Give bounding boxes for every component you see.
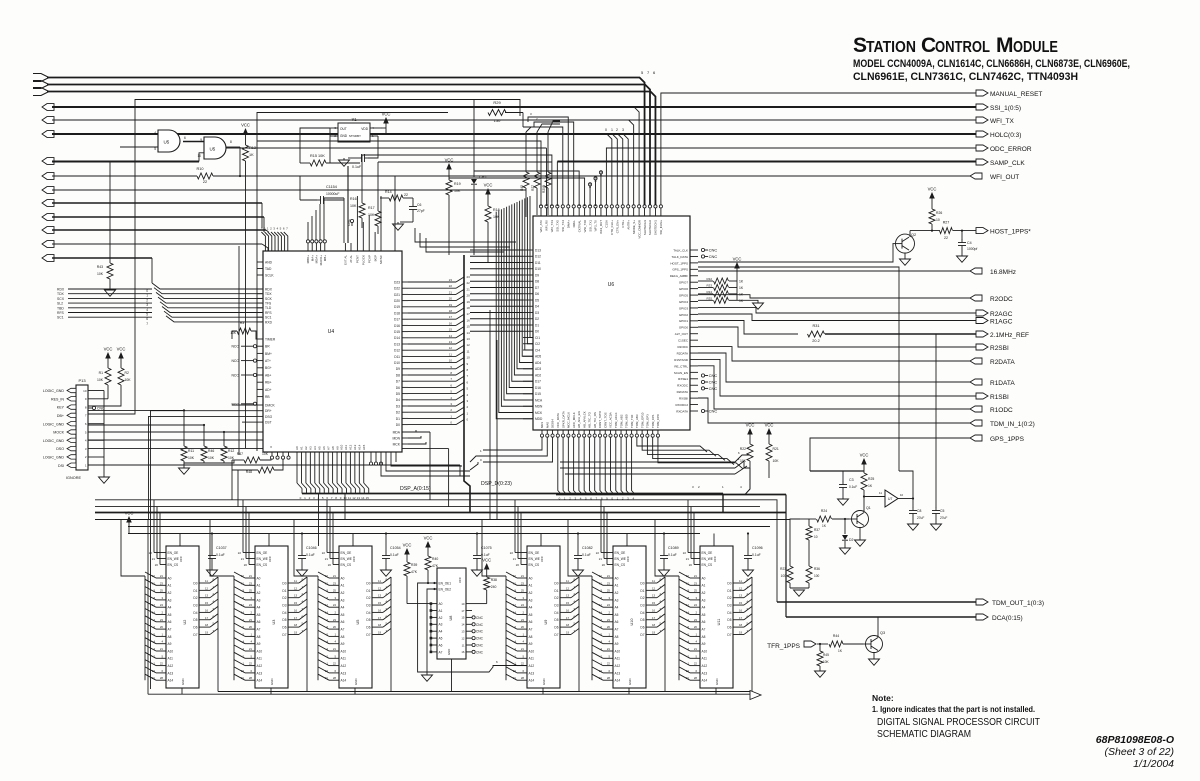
svg-text:EN_OE: EN_OE: [168, 551, 179, 555]
svg-text:26: 26: [521, 625, 525, 629]
svg-text:A9: A9: [335, 446, 339, 450]
svg-text:D4: D4: [554, 611, 558, 615]
svg-text:U8: U8: [449, 616, 453, 621]
svg-text:1. Ignore indicates that t: 1. Ignore indicates that the part is not…: [872, 705, 1035, 714]
svg-text:28: 28: [607, 676, 611, 680]
svg-text:S: S: [853, 34, 867, 57]
svg-text:26: 26: [333, 625, 337, 629]
svg-text:OUT: OUT: [340, 127, 347, 131]
svg-text:0.1uF: 0.1uF: [849, 485, 857, 489]
svg-text:D0: D0: [727, 581, 731, 585]
svg-text:RXDATA: RXDATA: [676, 409, 688, 413]
svg-text:EN_WE: EN_WE: [529, 557, 540, 561]
svg-text:A0: A0: [257, 576, 261, 580]
svg-text:R1: R1: [99, 371, 103, 375]
svg-text:14: 14: [599, 611, 603, 615]
svg-text:IGNORE: IGNORE: [66, 476, 81, 480]
svg-text:A0: A0: [439, 602, 443, 606]
svg-text:LOGIC_GND: LOGIC_GND: [43, 389, 65, 393]
svg-text:19: 19: [378, 630, 382, 634]
svg-text:C8: C8: [917, 509, 921, 513]
svg-text:A3: A3: [341, 598, 345, 602]
svg-text:TFR_1PPS: TFR_1PPS: [767, 643, 801, 650]
svg-text:GPIO6: GPIO6: [679, 287, 689, 291]
svg-text:SSI_TX5: SSI_TX5: [556, 220, 560, 232]
svg-text:SSI_TX1: SSI_TX1: [588, 220, 592, 232]
svg-text:SCHEMATIC DIAGRAM: SCHEMATIC DIAGRAM: [877, 729, 971, 740]
svg-text:VCC: VCC: [382, 112, 391, 117]
svg-text:12: 12: [205, 586, 209, 590]
svg-text:10K: 10K: [125, 378, 132, 382]
svg-text:TDX: TDX: [57, 292, 65, 296]
svg-text:X: X: [270, 445, 272, 449]
svg-text:A3: A3: [702, 598, 706, 602]
svg-text:CNC: CNC: [476, 644, 484, 648]
svg-text:12: 12: [241, 603, 245, 607]
svg-text:SSI_IN.IN+: SSI_IN.IN+: [659, 220, 663, 235]
svg-text:R24: R24: [821, 509, 827, 513]
svg-text:VCC: VCC: [746, 423, 755, 428]
svg-text:A0: A0: [529, 576, 533, 580]
svg-text:D7: D7: [282, 633, 286, 637]
svg-text:RXSE1: RXSE1: [678, 377, 688, 381]
svg-text:HOLC(0:3): HOLC(0:3): [990, 132, 1021, 139]
svg-text:CNC: CNC: [709, 248, 718, 253]
svg-text:D2: D2: [849, 538, 853, 542]
svg-text:D2: D2: [193, 596, 197, 600]
svg-text:13: 13: [294, 594, 298, 598]
svg-text:0.1uF: 0.1uF: [668, 553, 677, 557]
svg-text:HB_AFA_EN: HB_AFA_EN: [577, 411, 581, 428]
svg-text:D7: D7: [535, 286, 539, 290]
svg-text:28: 28: [694, 676, 698, 680]
svg-text:RES_IN: RES_IN: [51, 397, 64, 401]
svg-text:C1SA: C1SA: [605, 220, 609, 228]
svg-text:DST: DST: [265, 421, 272, 425]
svg-text:U5: U5: [356, 620, 360, 625]
svg-text:ANTR+: ANTR+: [626, 220, 630, 230]
svg-text:GPIO3: GPIO3: [679, 306, 689, 310]
svg-text:10: 10: [900, 493, 904, 497]
svg-text:14: 14: [461, 623, 465, 627]
svg-text:11: 11: [879, 491, 882, 495]
svg-text:20: 20: [244, 563, 248, 567]
svg-text:R16: R16: [350, 197, 357, 201]
svg-text:100: 100: [814, 574, 820, 578]
svg-text:17: 17: [739, 616, 743, 620]
svg-text:A11: A11: [168, 657, 174, 661]
svg-text:23: 23: [249, 618, 253, 622]
svg-text:10: 10: [467, 356, 471, 360]
svg-text:RFS: RFS: [57, 311, 65, 315]
svg-text:20: 20: [328, 563, 332, 567]
svg-text:D11: D11: [535, 261, 541, 265]
svg-text:A6: A6: [615, 620, 619, 624]
svg-text:GPIO0: GPIO0: [679, 326, 689, 330]
svg-text:21: 21: [607, 647, 611, 651]
svg-text:11: 11: [566, 579, 569, 583]
svg-text:10K: 10K: [97, 272, 104, 276]
svg-text:CLN6961E, CLN7361C, CLN7462C,: CLN6961E, CLN7361C, CLN7462C, TTN4093H: [853, 71, 1078, 83]
svg-text:VCC: VCC: [179, 556, 183, 562]
svg-text:10K: 10K: [350, 204, 357, 208]
svg-text:TDX: TDX: [265, 292, 272, 296]
svg-text:1K: 1K: [739, 299, 744, 303]
svg-text:VCC: VCC: [268, 556, 272, 562]
svg-text:SCK: SCK: [265, 297, 273, 301]
svg-text:10K: 10K: [188, 456, 195, 460]
svg-text:A5: A5: [702, 613, 706, 617]
svg-text:17: 17: [294, 616, 298, 620]
svg-text:A6: A6: [702, 620, 706, 624]
svg-text:D4: D4: [282, 611, 286, 615]
svg-text:CTR_CLK+: CTR_CLK+: [610, 220, 614, 235]
svg-text:R27: R27: [531, 185, 535, 191]
svg-text:25: 25: [694, 589, 698, 593]
svg-text:11: 11: [325, 581, 328, 585]
svg-text:D6: D6: [727, 626, 731, 630]
svg-text:10K: 10K: [773, 459, 780, 463]
svg-text:A3: A3: [257, 598, 261, 602]
svg-text:24: 24: [694, 603, 698, 607]
svg-text:23: 23: [249, 581, 253, 585]
svg-text:A11: A11: [341, 657, 347, 661]
svg-text:19: 19: [449, 303, 453, 307]
svg-text:A15: A15: [362, 444, 366, 450]
svg-text:PLOCK: PLOCK: [362, 255, 366, 265]
svg-text:22: 22: [404, 193, 408, 197]
svg-text:WSI_TX0: WSI_TX0: [583, 220, 587, 233]
svg-text:13: 13: [566, 594, 570, 598]
svg-text:13: 13: [449, 340, 453, 344]
svg-text:A6: A6: [257, 620, 261, 624]
svg-text:12: 12: [152, 603, 156, 607]
svg-text:R2ODC: R2ODC: [990, 296, 1013, 303]
svg-text:D3: D3: [554, 603, 558, 607]
svg-text:23: 23: [521, 581, 525, 585]
svg-text:R2: R2: [125, 371, 129, 375]
svg-text:D10: D10: [535, 267, 541, 271]
svg-text:11: 11: [294, 579, 297, 583]
svg-text:NCO: NCO: [231, 359, 239, 363]
svg-text:A13: A13: [341, 671, 347, 675]
svg-text:D6: D6: [640, 626, 644, 630]
svg-text:VCC: VCC: [352, 556, 356, 562]
svg-text:1K: 1K: [249, 153, 254, 157]
svg-text:1K: 1K: [739, 280, 744, 284]
svg-text:TOM_ACLK: TOM_ACLK: [614, 412, 618, 428]
svg-text:12: 12: [294, 586, 298, 590]
svg-text:A4: A4: [257, 606, 261, 610]
svg-text:22: 22: [521, 662, 525, 666]
svg-text:U7: U7: [888, 497, 892, 501]
svg-text:DMA+: DMA+: [566, 220, 570, 228]
svg-text:18: 18: [205, 623, 209, 627]
svg-text:MDA: MDA: [393, 430, 401, 434]
svg-text:C4: C4: [967, 241, 972, 245]
svg-text:TOM_AB3: TOM_AB3: [635, 414, 639, 428]
svg-text:D6: D6: [366, 626, 370, 630]
svg-text:10: 10: [936, 218, 940, 222]
svg-text:17: 17: [461, 609, 465, 613]
svg-text:R25: R25: [868, 477, 874, 481]
svg-text:GND: GND: [715, 679, 719, 685]
svg-text:21: 21: [152, 676, 156, 680]
svg-text:D7: D7: [554, 633, 558, 637]
svg-text:D4: D4: [727, 611, 731, 615]
svg-text:RXODC: RXODC: [677, 384, 689, 388]
svg-text:TOM_CP1: TOM_CP1: [651, 414, 655, 428]
svg-text:15: 15: [378, 601, 382, 605]
svg-text:16: 16: [461, 650, 465, 654]
svg-text:A9: A9: [615, 642, 619, 646]
svg-text:D2: D2: [366, 596, 370, 600]
svg-text:22: 22: [449, 284, 453, 288]
svg-text:D2: D2: [396, 411, 400, 415]
svg-text:BGP: BGP: [373, 255, 377, 261]
svg-text:23: 23: [467, 275, 471, 279]
svg-text:D3: D3: [396, 404, 400, 408]
svg-text:22: 22: [683, 551, 687, 555]
svg-text:R43: R43: [97, 265, 103, 269]
svg-text:25: 25: [521, 589, 525, 593]
svg-text:24: 24: [241, 669, 245, 673]
svg-text:R29B: R29B: [542, 185, 546, 193]
svg-text:RB+: RB+: [265, 381, 272, 385]
svg-text:A8: A8: [341, 635, 345, 639]
svg-text:D15: D15: [535, 392, 541, 396]
svg-text:CRNT_TOS: CRNT_TOS: [603, 412, 607, 428]
svg-text:EN_WE: EN_WE: [341, 557, 352, 561]
svg-text:CTR_EN+: CTR_EN+: [616, 220, 620, 234]
svg-text:TOM_AB2: TOM_AB2: [619, 414, 623, 428]
svg-text:A4: A4: [313, 446, 317, 450]
svg-text:17: 17: [467, 312, 471, 316]
svg-text:22: 22: [160, 662, 164, 666]
svg-text:WFI_TX3: WFI_TX3: [550, 220, 554, 233]
svg-text:R12: R12: [228, 449, 234, 453]
svg-text:TOM_AB0: TOM_AB0: [625, 414, 629, 428]
svg-text:DSO: DSO: [56, 447, 64, 451]
svg-text:D3: D3: [535, 311, 539, 315]
svg-text:23: 23: [449, 278, 453, 282]
svg-text:A7: A7: [326, 446, 330, 450]
svg-text:18: 18: [378, 623, 382, 627]
svg-text:D8: D8: [535, 280, 539, 284]
svg-text:A14: A14: [257, 679, 263, 683]
svg-text:10: 10: [241, 574, 245, 578]
svg-text:10K: 10K: [230, 331, 237, 335]
svg-text:11: 11: [378, 579, 381, 583]
svg-text:GPIO1: GPIO1: [679, 319, 689, 323]
svg-text:GND: GND: [628, 679, 632, 685]
svg-text:1/1/2004: 1/1/2004: [1133, 758, 1174, 770]
svg-text:CNC: CNC: [709, 380, 718, 385]
svg-text:U2: U2: [183, 620, 187, 625]
svg-text:EN_OE: EN_OE: [702, 551, 713, 555]
svg-text:DE834: DE834: [551, 419, 555, 428]
svg-text:A1: A1: [341, 584, 345, 588]
svg-text:10: 10: [686, 574, 690, 578]
svg-text:C3: C3: [849, 478, 854, 482]
svg-text:12: 12: [325, 603, 329, 607]
svg-text:A12: A12: [529, 664, 535, 668]
svg-text:R2DATA: R2DATA: [677, 351, 688, 355]
svg-text:D12: D12: [394, 349, 400, 353]
svg-text:R11: R11: [188, 449, 194, 453]
svg-text:VCC: VCC: [458, 577, 462, 583]
svg-text:TOM_TX0: TOM_TX0: [630, 414, 634, 428]
svg-text:SCX: SCX: [57, 297, 65, 301]
svg-text:A5: A5: [615, 613, 619, 617]
svg-text:23: 23: [521, 618, 525, 622]
svg-text:MOCK: MOCK: [53, 431, 64, 435]
svg-text:EN_WE: EN_WE: [168, 557, 179, 561]
svg-text:C1082: C1082: [582, 546, 593, 550]
svg-text:TATION: TATION: [866, 39, 916, 56]
svg-text:C: C: [921, 34, 936, 57]
svg-text:A8: A8: [615, 635, 619, 639]
svg-text:A14: A14: [529, 679, 535, 683]
svg-text:VCC: VCC: [403, 543, 412, 548]
svg-text:15: 15: [566, 601, 570, 605]
svg-text:C1089: C1089: [668, 546, 679, 550]
svg-text:BR: BR: [265, 345, 270, 349]
svg-text:U9: U9: [544, 620, 548, 625]
svg-text:A2: A2: [529, 591, 533, 595]
svg-text:10: 10: [599, 574, 603, 578]
svg-text:Q2: Q2: [911, 233, 916, 237]
svg-text:13: 13: [652, 594, 656, 598]
svg-text:R35: R35: [706, 296, 712, 300]
svg-text:A5: A5: [317, 446, 321, 450]
svg-text:R46: R46: [208, 449, 214, 453]
svg-text:GPS_1PPS: GPS_1PPS: [672, 268, 688, 272]
svg-text:A1: A1: [439, 609, 443, 613]
svg-text:M: M: [996, 34, 1014, 57]
svg-text:18: 18: [652, 623, 656, 627]
svg-text:14: 14: [686, 611, 690, 615]
svg-text:C1037: C1037: [216, 546, 227, 550]
svg-text:RDX: RDX: [265, 287, 273, 291]
svg-text:R31: R31: [813, 324, 820, 328]
svg-text:21: 21: [325, 557, 329, 561]
svg-text:A4: A4: [439, 630, 443, 634]
svg-text:LOGIC_GND: LOGIC_GND: [43, 439, 65, 443]
svg-text:22: 22: [510, 551, 514, 555]
svg-text:15: 15: [739, 601, 743, 605]
svg-text:SH3TECH3: SH3TECH3: [643, 220, 647, 235]
svg-text:24: 24: [333, 603, 337, 607]
svg-text:R22: R22: [740, 447, 746, 451]
svg-text:D10: D10: [394, 361, 400, 365]
svg-text:A11: A11: [615, 657, 621, 661]
svg-text:A3: A3: [309, 446, 313, 450]
svg-text:27pF: 27pF: [417, 209, 425, 213]
svg-text:EN_OE: EN_OE: [529, 551, 540, 555]
svg-text:D9: D9: [396, 367, 400, 371]
svg-text:A1: A1: [615, 584, 619, 588]
svg-text:WFI_RX: WFI_RX: [545, 220, 549, 231]
svg-text:16: 16: [652, 608, 656, 612]
svg-text:12: 12: [378, 586, 382, 590]
svg-text:MODE_S+: MODE_S+: [632, 220, 636, 234]
svg-text:D9: D9: [535, 273, 539, 277]
svg-text:15: 15: [449, 328, 453, 332]
svg-text:A0: A0: [615, 576, 619, 580]
svg-text:0.1uF: 0.1uF: [306, 553, 315, 557]
svg-text:13: 13: [467, 337, 471, 341]
svg-text:A10: A10: [615, 649, 621, 653]
svg-text:10: 10: [513, 574, 517, 578]
svg-text:D2: D2: [535, 317, 539, 321]
svg-text:12: 12: [513, 603, 517, 607]
svg-text:KTR+: KTR+: [621, 220, 625, 228]
svg-text:18: 18: [449, 309, 453, 313]
svg-text:CI1: CI1: [535, 336, 540, 340]
svg-text:D17: D17: [535, 380, 541, 384]
svg-text:0.1uF: 0.1uF: [216, 553, 225, 557]
svg-text:A8: A8: [702, 635, 706, 639]
svg-text:23: 23: [160, 618, 164, 622]
svg-text:R3: R3: [240, 321, 245, 325]
svg-text:GPIO5: GPIO5: [679, 293, 689, 297]
svg-text:A13: A13: [529, 671, 535, 675]
svg-text:D6: D6: [396, 386, 400, 390]
svg-text:5: 5: [154, 147, 156, 151]
svg-text:EN_OE: EN_OE: [257, 551, 268, 555]
svg-text:A3: A3: [615, 598, 619, 602]
svg-text:D3: D3: [282, 603, 286, 607]
svg-text:GND: GND: [181, 679, 185, 685]
svg-text:12: 12: [566, 586, 570, 590]
svg-text:3: 3: [146, 303, 148, 307]
svg-text:VCC: VCC: [482, 558, 491, 563]
svg-text:14: 14: [513, 611, 517, 615]
svg-text:D22: D22: [394, 287, 400, 291]
svg-text:D19: D19: [394, 305, 400, 309]
svg-text:A3: A3: [529, 598, 533, 602]
svg-text:D1: D1: [535, 323, 539, 327]
svg-text:D0: D0: [282, 581, 286, 585]
svg-text:17: 17: [205, 616, 209, 620]
svg-text:VCC: VCC: [104, 347, 113, 352]
svg-text:24: 24: [599, 669, 603, 673]
svg-text:GND: GND: [340, 134, 348, 138]
svg-text:22: 22: [149, 551, 153, 555]
svg-text:A7: A7: [257, 628, 261, 632]
svg-text:A2: A2: [168, 591, 172, 595]
svg-text:5: 5: [146, 313, 148, 317]
svg-text:A2: A2: [257, 591, 261, 595]
svg-text:21: 21: [521, 574, 525, 578]
svg-text:A7: A7: [439, 650, 443, 654]
svg-text:15: 15: [652, 601, 656, 605]
svg-text:MANUAL_RESET: MANUAL_RESET: [990, 91, 1042, 98]
svg-text:20: 20: [467, 294, 471, 298]
svg-text:TDM_OUT_1(0:3): TDM_OUT_1(0:3): [992, 600, 1044, 607]
svg-text:R27: R27: [943, 221, 950, 225]
svg-text:A14: A14: [341, 679, 347, 683]
svg-text:A5: A5: [341, 613, 345, 617]
svg-text:15: 15: [467, 325, 471, 329]
svg-text:C6: C6: [417, 203, 421, 207]
svg-text:NCO: NCO: [231, 374, 239, 378]
svg-text:A2: A2: [439, 616, 443, 620]
svg-text:16.8MHz: 16.8MHz: [990, 269, 1016, 276]
svg-text:WFI_TX: WFI_TX: [990, 118, 1014, 125]
svg-text:D23: D23: [394, 280, 400, 284]
